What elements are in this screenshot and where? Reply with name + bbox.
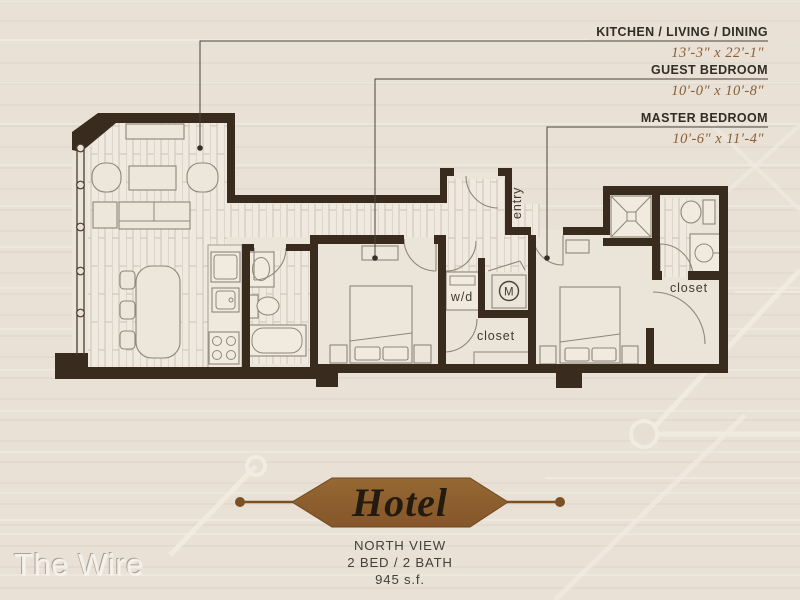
master-closet-label: closet <box>670 281 708 295</box>
washer-dryer-label: w/d <box>450 290 473 304</box>
dining-table <box>136 266 180 358</box>
callout-master-bedroom-dims: 10'-6" x 11'-4" <box>672 131 764 147</box>
armchair <box>187 163 218 192</box>
dining-chair <box>120 271 135 289</box>
coffee-table <box>129 166 176 190</box>
banner-line-dot <box>235 497 245 507</box>
config-label: 2 BED / 2 BATH <box>347 555 453 570</box>
window-mullion <box>77 309 85 317</box>
refrigerator <box>211 252 240 282</box>
callout-kitchen-living-dining: KITCHEN / LIVING / DINING <box>596 25 768 39</box>
window-mullion <box>77 144 85 152</box>
dining-chair <box>120 331 135 349</box>
nightstand <box>414 345 431 363</box>
callout-guest-bedroom-dims: 10'-0" x 10'-8" <box>671 83 764 99</box>
window-mullion <box>77 181 85 189</box>
guest-closet-label: closet <box>477 329 515 343</box>
armchair <box>92 163 121 192</box>
nightstand <box>622 346 638 364</box>
view-label: NORTH VIEW <box>354 538 446 553</box>
callout-guest-bedroom: GUEST BEDROOM <box>651 63 768 77</box>
mechanical-label: M <box>504 287 514 299</box>
side-table <box>93 202 117 228</box>
floorplan-page: entry w/d M closet closet KITCHEN / LIVI… <box>0 0 800 600</box>
stove <box>209 332 239 364</box>
nightstand <box>540 346 556 364</box>
tv-console <box>126 124 184 139</box>
banner-line-dot <box>555 497 565 507</box>
watermark: The Wire <box>14 547 144 583</box>
dresser <box>566 240 589 253</box>
callout-kitchen-living-dining-dims: 13'-3" x 22'-1" <box>671 45 764 61</box>
area-label: 945 s.f. <box>375 572 425 587</box>
dining-chair <box>120 301 135 319</box>
window-mullion <box>77 223 85 231</box>
toilet <box>703 200 715 224</box>
entry-label: entry <box>510 187 524 219</box>
dresser <box>362 246 398 260</box>
unit-banner: Hotel NORTH VIEW 2 BED / 2 BATH 945 s.f. <box>235 478 565 587</box>
unit-name: Hotel <box>351 480 448 525</box>
callout-master-bedroom: MASTER BEDROOM <box>641 111 768 125</box>
floor-plan-svg: entry w/d M closet closet KITCHEN / LIVI… <box>0 0 800 600</box>
nightstand <box>330 345 347 363</box>
kitchen-fixtures <box>209 252 240 364</box>
window-mullion <box>77 267 85 275</box>
